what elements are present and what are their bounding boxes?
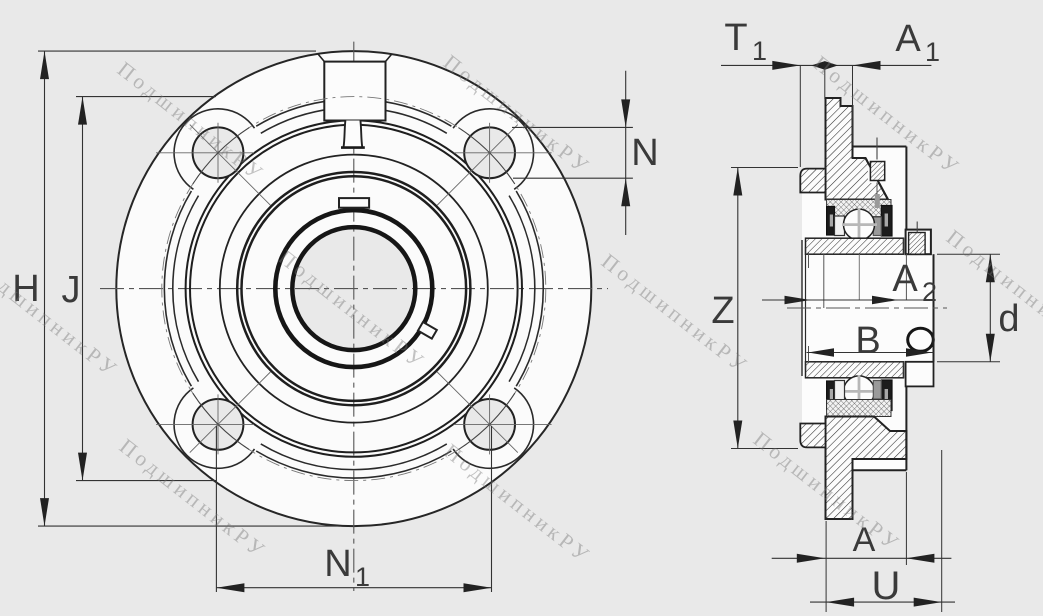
svg-text:N: N <box>324 543 351 585</box>
svg-text:Z: Z <box>711 290 734 332</box>
svg-text:1: 1 <box>752 36 767 66</box>
svg-text:B: B <box>855 320 880 362</box>
svg-text:N: N <box>631 132 658 174</box>
svg-text:A: A <box>892 258 918 300</box>
svg-text:d: d <box>998 298 1019 340</box>
svg-text:1: 1 <box>925 37 940 67</box>
svg-text:U: U <box>872 564 901 608</box>
svg-text:T: T <box>724 17 747 59</box>
svg-text:1: 1 <box>355 562 370 592</box>
svg-text:2: 2 <box>922 277 937 307</box>
svg-text:A: A <box>895 18 921 60</box>
svg-text:J: J <box>62 269 81 311</box>
